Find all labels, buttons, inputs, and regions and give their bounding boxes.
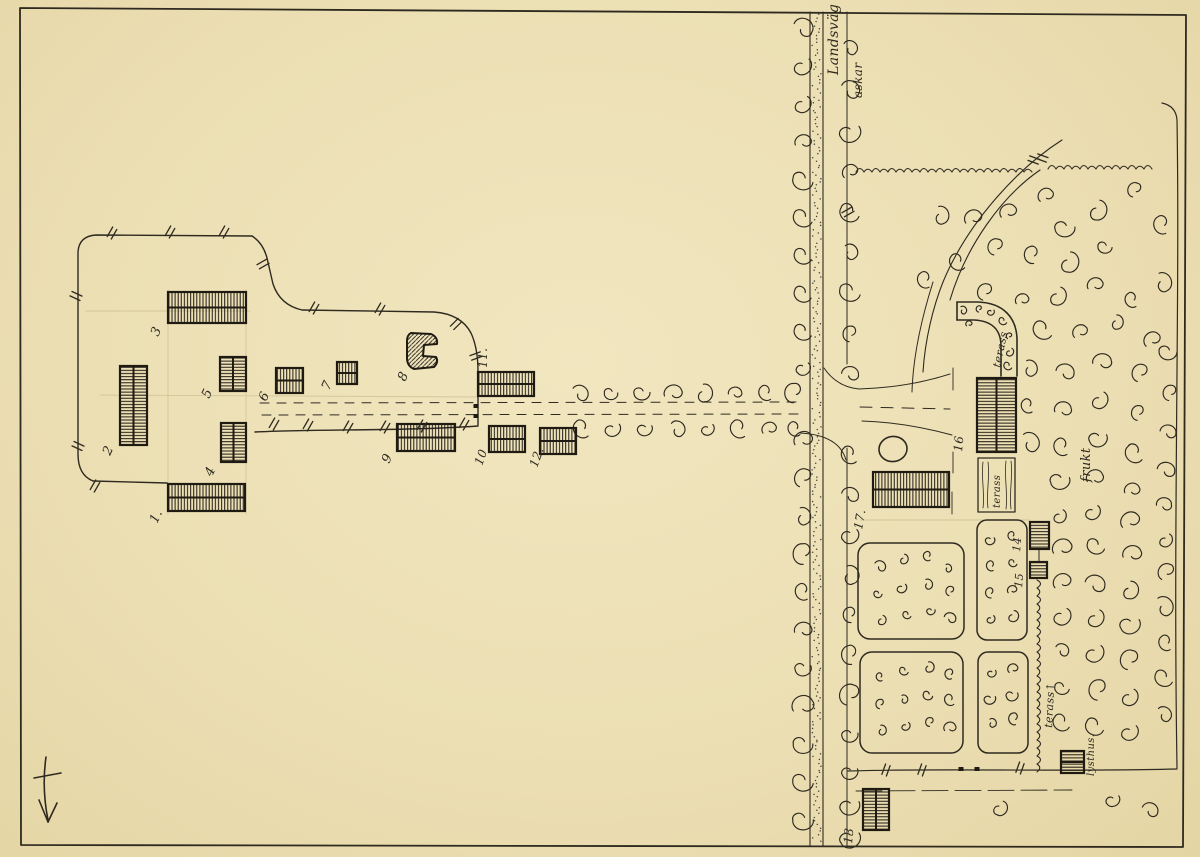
boundary-tick [1016,762,1020,772]
boundary-tick [169,228,175,238]
gravel-dot [812,282,814,284]
gravel-dot [812,607,814,609]
gravel-dot [816,548,818,550]
tree-scribble [933,204,951,225]
tree-scribble [925,661,934,672]
gravel-dot [817,300,819,302]
tree-scribble [901,721,912,732]
tree-scribble [1120,543,1143,563]
tree-scribble [604,389,617,400]
gravel-dot [816,783,818,785]
tree-scribble [945,585,954,596]
gravel-dot [816,476,818,478]
tree-scribble [1130,362,1148,383]
gravel-dot [813,69,815,71]
tree-scribble [1156,633,1175,653]
label-terass-mid: terass [992,475,1003,508]
gravel-dot [820,222,822,224]
gravel-dot [814,820,816,822]
gravel-dot [816,216,818,218]
trees [570,15,1177,852]
gravel-dot [812,494,814,496]
gravel-dot [812,172,814,174]
gravel-dot [814,321,816,323]
gravel-dot [819,575,821,577]
label-15: 15 [1012,572,1026,588]
label-6: 6 [256,389,273,403]
tree-scribble [976,282,993,302]
gravel-dot [820,276,822,278]
gravel-dot [816,35,818,37]
gravel-dot [812,552,814,554]
gravel-dot [817,429,819,431]
gravel-dot [819,712,821,714]
plot-b [860,652,963,753]
gravel-dot [820,668,822,670]
gravel-dot [812,581,814,583]
gravel-dot [813,97,815,99]
gravel-dot [817,371,819,373]
label-10: 10 [472,447,491,467]
gravel-dot [816,647,818,649]
tree-scribble [1153,270,1174,294]
gravel-dot [817,650,819,652]
tree-scribble [987,308,996,316]
tree-scribble [841,38,860,57]
gravel-dot [813,794,815,796]
tree-scribble [1050,570,1073,592]
tree-scribble [1005,689,1019,702]
gravel-dot [813,535,815,537]
tree-scribble [1131,405,1144,421]
gravel-dot [811,469,813,471]
tree-scribble [1035,185,1055,205]
gravel-dot [813,140,815,142]
gravel-dot [814,112,816,114]
gravel-dot [817,153,819,155]
farm-boundary-step [252,236,478,372]
tree-scribble [1159,424,1177,438]
tree-scribble [793,544,810,565]
building-5 [220,357,246,391]
road-gravel-dots [811,13,822,842]
gravel-dot [815,54,817,56]
gravel-dot [814,419,816,421]
tree-scribble [902,611,912,620]
tree-scribble [634,387,651,400]
label-9: 9 [379,451,396,465]
gravel-dot [814,627,816,629]
tree-scribble [698,384,714,403]
tree-scribble [1153,593,1177,618]
tree-scribble [1158,532,1175,550]
gravel-dot [816,511,818,513]
tree-scribble [922,691,933,701]
gravel-dot [812,756,814,758]
tree-scribble [1156,461,1176,477]
gravel-dot [820,402,822,404]
gravel-dot [816,392,818,394]
building-4 [221,423,246,462]
gravel-dot [819,59,821,61]
tree-scribble [1029,319,1055,343]
gravel-dot [819,772,821,774]
gravel-dot [819,79,821,81]
gravel-dot [816,126,818,128]
north-arrow [34,757,61,822]
boundary-tick [72,292,82,297]
gravel-dot [811,45,813,47]
label-askar: askar [851,62,865,98]
tree-scribble [959,305,968,315]
tree-scribble [1055,363,1076,380]
north-arrow-stroke [34,773,61,778]
building-15-outline [1030,562,1047,578]
tree-scribble [791,428,815,450]
gravel-dot [818,232,820,234]
tree-scribble [1070,322,1090,341]
tree-scribble [984,535,996,546]
boundary-tick [450,318,458,326]
gravel-dot [813,317,815,319]
gravel-dot [812,408,814,410]
gravel-dot [819,341,821,343]
gravel-dot [816,242,818,244]
gravel-dot [816,38,818,40]
gravel-dot [814,515,816,517]
gravel-dot [812,728,814,730]
tree-scribble [943,612,957,624]
gravel-dot [815,599,817,601]
tree-scribble [992,799,1010,818]
gravel-dot [816,695,818,697]
tree-scribble [1049,285,1068,307]
tree-scribble [900,694,910,705]
tree-scribble [926,607,936,616]
label-3: 3 [148,324,165,338]
label-terass-lower: terass↑ [1042,681,1057,728]
gravel-dot [820,827,822,829]
gravel-dot [817,436,819,438]
tree-scribble [570,382,591,402]
boundary-tick [463,420,469,430]
gravel-dot [815,246,817,248]
gravel-dot [814,541,816,543]
gravel-dot [820,840,822,842]
label-landsvag: Landsväg [826,4,842,76]
gravel-dot [811,473,813,475]
tree-scribble [759,419,778,437]
tree-scribble [898,667,909,677]
gravel-dot [820,426,822,428]
gravel-dot [814,817,816,819]
gravel-dot [818,677,820,679]
plot-a [858,543,964,639]
tree-scribble [986,614,997,625]
tree-scribble [1084,502,1104,522]
gravel-dot [815,455,817,457]
tree-scribble [987,717,997,728]
pencil-line [100,395,476,397]
tree-scribble [1087,607,1107,629]
gravel-dot [819,165,821,167]
gravel-dot [818,661,820,663]
tree-scribble [1159,346,1177,360]
building-3 [168,292,246,323]
site-plan-drawing: Landsvägaskarfruktterassterassterass↑lys… [0,0,1200,857]
gravel-dot [815,527,817,529]
drive-dash-lower [262,414,800,415]
gravel-dot [814,486,816,488]
tree-scribble [875,672,885,682]
gravel-dot [816,17,818,19]
gravel-dot [818,790,820,792]
tree-scribble [944,563,953,573]
gravel-dot [813,229,815,231]
gravel-dot [816,809,818,811]
tree-scribble [1008,610,1019,623]
gravel-dot [815,780,817,782]
gravel-dot [818,834,820,836]
tree-scribble [1054,221,1075,238]
gravel-dot [813,561,815,563]
gravel-dot [816,741,818,743]
tree-scribble [1006,662,1019,675]
gravel-dot [814,631,816,633]
gravel-dot [819,106,821,108]
gravel-dot [818,634,820,636]
gravel-dot [817,88,819,90]
tree-scribble [1088,679,1105,701]
gravel-dot [820,613,822,615]
building-17 [873,472,949,507]
gravel-dot [816,507,818,509]
building-2 [120,366,147,445]
gravel-dot [820,753,822,755]
gravel-dot [816,786,818,788]
tree-scribble [836,681,860,707]
gravel-dot [813,365,815,367]
gravel-dot [819,82,821,84]
building-6 [276,368,303,393]
hedge-north-west [856,169,1032,173]
gravel-dot [812,490,814,492]
boundary-tick [94,482,100,492]
gravel-dot [815,21,817,23]
building-14 [1030,522,1049,549]
drive-east-top [859,374,950,389]
gravel-dot [820,137,822,139]
tree-scribble [700,421,717,438]
tree-scribble [1121,686,1141,708]
tree-scribble [837,282,862,303]
tree-scribble [942,693,957,708]
tree-scribble [789,692,816,718]
gravel-dot [817,796,819,798]
gravel-dot [812,85,814,87]
north-arrow-stroke [48,803,57,822]
boundary-tick [257,259,267,265]
tree-scribble [1053,508,1069,525]
gravel-dot [814,143,816,145]
gravel-dot [816,190,818,192]
tree-scribble [1087,429,1109,449]
gravel-dot [814,336,816,338]
building-14-outline [1030,522,1049,549]
boundary-tick [269,418,275,428]
boundary-tick [273,420,279,430]
tree-scribble [841,366,859,380]
tree-scribble [1085,275,1105,293]
gravel-dot [814,348,816,350]
gravel-dot [815,800,817,802]
tree-scribble [900,554,908,565]
gravel-dot [818,147,820,149]
gravel-dot [817,292,819,294]
tree-scribble [840,644,858,665]
gravel-dot [813,804,815,806]
gravel-dot [816,287,818,289]
gravel-dot [815,123,817,125]
gravel-dot [818,376,820,378]
tree-scribble [1049,471,1072,491]
gravel-dot [814,616,816,618]
gravel-dot [818,297,820,299]
gate-post [959,767,964,771]
gravel-dot [815,345,817,347]
tree-scribble [1053,400,1072,417]
tree-scribble [985,560,996,573]
gravel-dot [812,721,814,723]
tree-scribble [840,486,860,503]
gravel-dot [817,637,819,639]
terrace-strip-line-3 [1005,461,1006,509]
boundary-tick [74,442,84,447]
gravel-dot [819,369,821,371]
building-16 [977,378,1016,452]
boundary-tick [219,226,225,236]
tree-scribble [791,15,816,38]
tree-scribble [728,386,743,398]
tree-scribble [1121,442,1146,467]
gravel-dot [818,433,820,435]
boundary-tick [844,211,854,217]
tree-scribble [1097,242,1112,254]
drive-east-dash [860,407,950,409]
tree-scribble [792,582,812,603]
tree-scribble [1155,704,1175,724]
tree-scribble [792,55,815,78]
tree-scribble [878,724,888,735]
label-17: 17. [851,508,868,530]
label-7: 7 [319,378,336,392]
pond [879,436,907,461]
tree-scribble [662,383,684,402]
building-10 [489,426,525,452]
drive-east-bottom [862,421,952,435]
label-16: 16 [951,435,966,452]
tree-scribble [842,607,856,624]
building-lysthus [1061,751,1084,773]
tree-scribble [1085,537,1107,556]
gravel-dot [815,521,817,523]
tree-scribble [925,717,933,727]
gravel-dot [812,517,814,519]
tree-scribble [998,317,1008,326]
gravel-dot [814,267,816,269]
tree-scribble [875,699,883,709]
label-2: 2 [100,443,118,458]
tree-scribble [1120,722,1142,744]
gravel-dot [817,330,819,332]
boundary-tick [922,766,926,776]
building-1 [168,484,245,511]
building-9 [397,424,455,451]
tree-scribble [838,796,863,819]
gravel-dot [819,198,821,200]
boundary-tick [307,421,313,431]
tree-scribble [1091,389,1111,411]
gravel-dot [817,207,819,209]
building-13 [863,789,889,830]
boundary-tick [918,764,922,774]
gravel-dot [815,256,817,258]
tree-scribble [1141,800,1161,818]
gravel-dot [818,588,820,590]
gravel-dot [815,688,817,690]
gravel-dot [819,362,821,364]
tree-scribble [790,208,815,230]
boundary-tick [882,764,886,774]
gravel-dot [816,42,818,44]
gravel-dot [814,202,816,204]
boundary-tick [347,423,353,433]
gravel-dot [812,157,814,159]
gravel-dot [820,238,822,240]
buildings [120,292,1084,830]
gravel-dot [816,388,818,390]
gravel-dot [819,718,821,720]
tree-scribble [1151,214,1172,237]
hedge-north-east [1048,166,1152,170]
gravel-dot [813,531,815,533]
gravel-dot [812,593,814,595]
gravel-dot [819,416,821,418]
gravel-dot [816,573,818,575]
gravel-dot [819,697,821,699]
tree-scribble [1018,429,1043,454]
gravel-dot [819,28,821,30]
gravel-dot [814,708,816,710]
gravel-dot [813,102,815,104]
boundary-tick [1036,158,1046,162]
tree-scribble [1007,712,1019,726]
gravel-dot [816,479,818,481]
tree-scribble [944,668,955,680]
label-14: 14 [1010,536,1024,552]
gravel-dot [820,525,822,527]
terrace-strip-line-4 [1010,461,1011,509]
gravel-dot [817,303,819,305]
tree-scribble [1092,352,1113,369]
tree-scribble [1152,668,1175,689]
gravel-dot [818,439,820,441]
tree-scribble [840,764,860,782]
gravel-dot [820,579,822,581]
gravel-dot [820,496,822,498]
gravel-dot [814,205,816,207]
tree-scribble [668,418,689,439]
